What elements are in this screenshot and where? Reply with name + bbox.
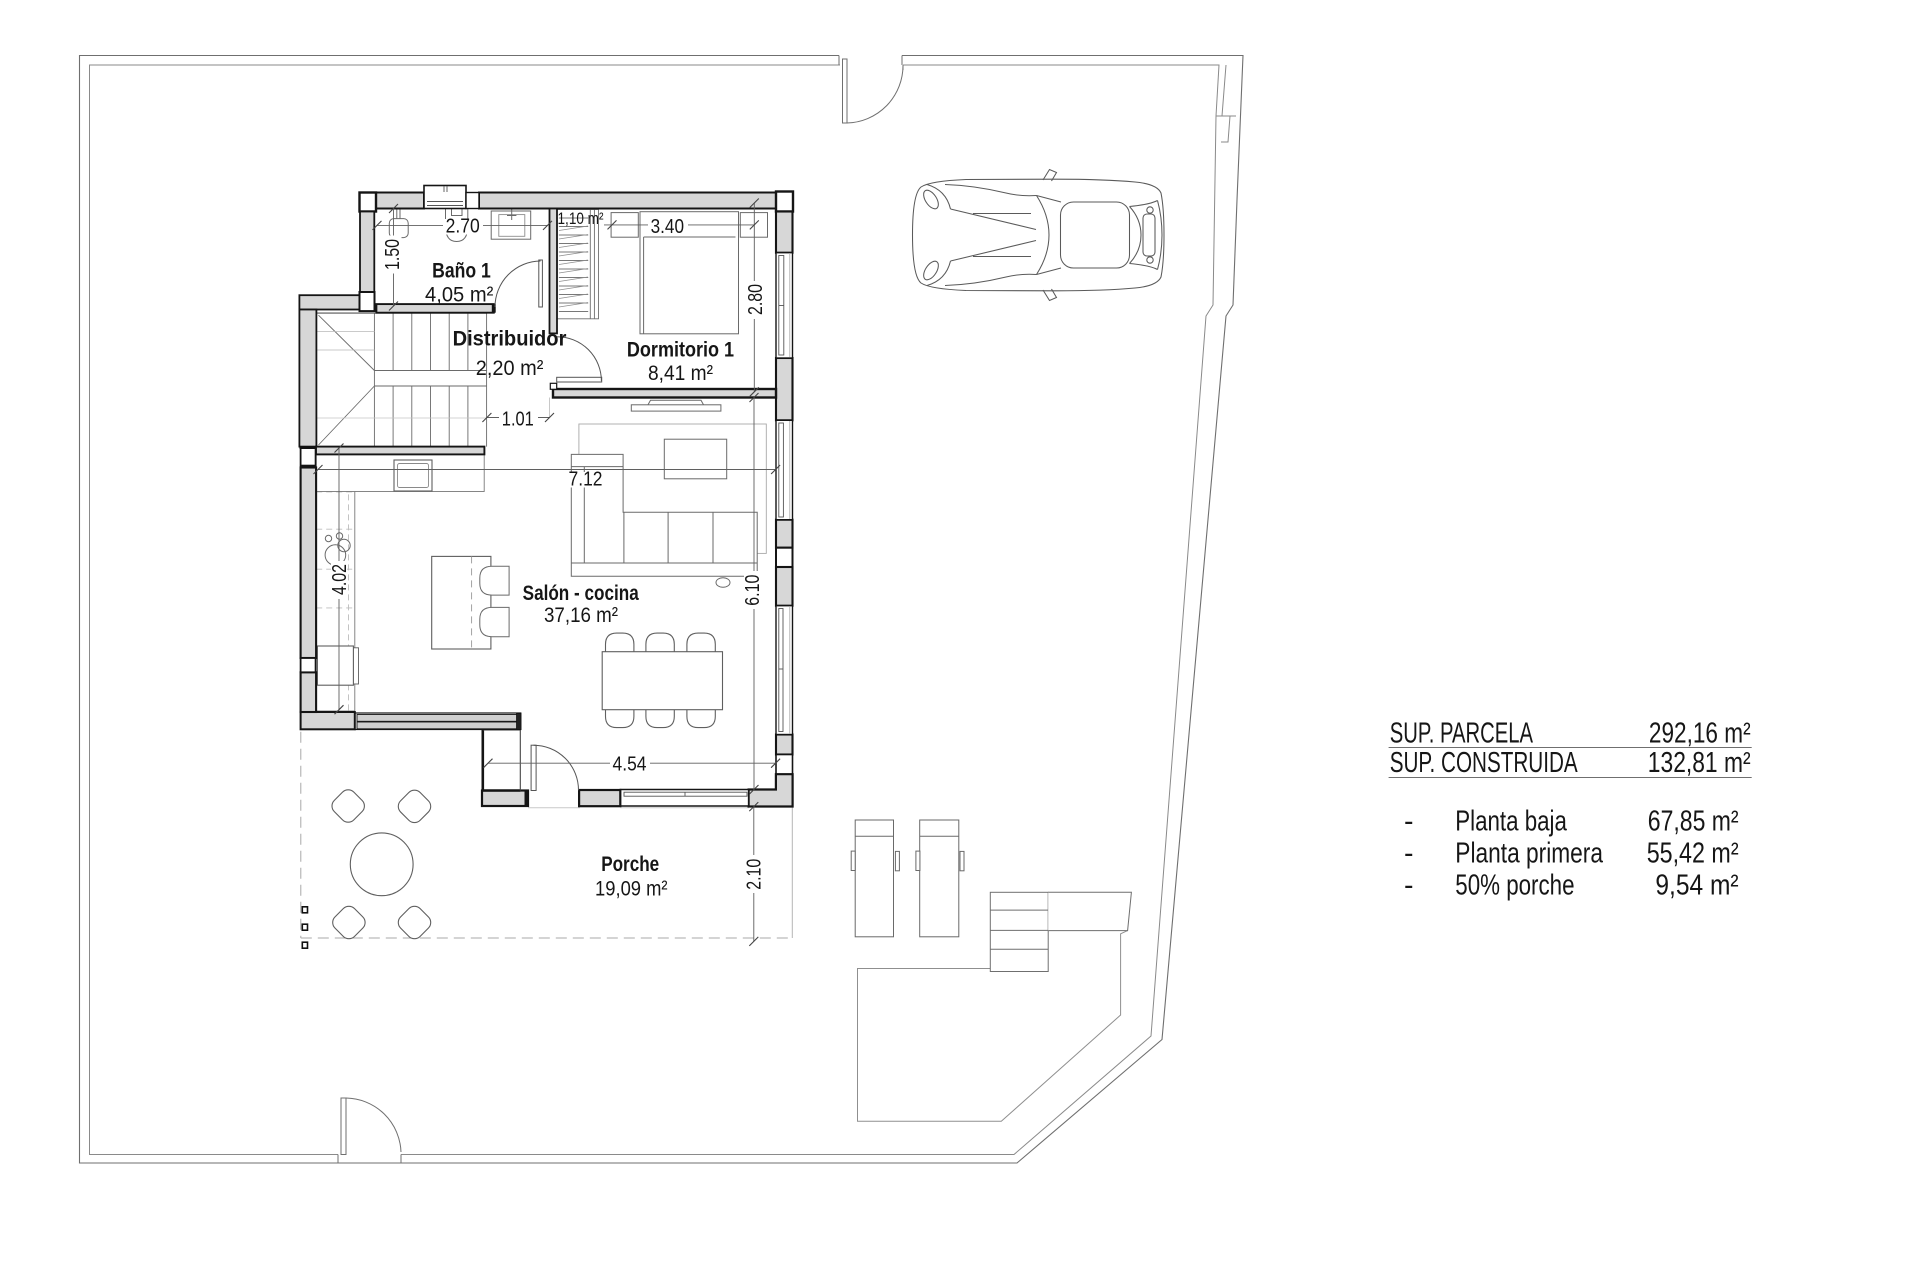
svg-text:Planta primera: Planta primera — [1455, 838, 1603, 870]
svg-text:Salón - cocina: Salón - cocina — [523, 581, 640, 605]
svg-text:4.54: 4.54 — [613, 754, 647, 776]
svg-text:Porche: Porche — [601, 852, 659, 876]
svg-text:1.01: 1.01 — [502, 409, 534, 431]
svg-text:132,81 m²: 132,81 m² — [1648, 747, 1751, 779]
svg-text:4,05 m²: 4,05 m² — [425, 284, 493, 307]
svg-text:4.02: 4.02 — [329, 564, 351, 595]
svg-text:7.12: 7.12 — [569, 469, 603, 491]
svg-text:19,09 m²: 19,09 m² — [595, 877, 668, 900]
svg-text:SUP. PARCELA: SUP. PARCELA — [1390, 718, 1533, 750]
svg-text:-: - — [1404, 870, 1414, 902]
svg-text:67,85 m²: 67,85 m² — [1648, 806, 1739, 838]
svg-text:1,10 m²: 1,10 m² — [558, 209, 604, 228]
svg-text:3.40: 3.40 — [651, 216, 684, 238]
svg-text:50% porche: 50% porche — [1455, 870, 1574, 902]
svg-text:2,20 m²: 2,20 m² — [476, 357, 544, 380]
svg-text:Dormitorio 1: Dormitorio 1 — [627, 338, 734, 362]
svg-text:2.80: 2.80 — [745, 284, 767, 315]
svg-text:-: - — [1404, 806, 1414, 838]
svg-text:2.70: 2.70 — [446, 216, 480, 238]
svg-text:1.50: 1.50 — [382, 239, 404, 270]
svg-text:SUP. CONSTRUIDA: SUP. CONSTRUIDA — [1390, 747, 1578, 779]
svg-text:Distribuidor: Distribuidor — [453, 326, 567, 350]
svg-text:292,16 m²: 292,16 m² — [1649, 718, 1751, 750]
svg-text:2.10: 2.10 — [744, 859, 766, 890]
svg-text:-: - — [1404, 838, 1414, 870]
svg-text:55,42 m²: 55,42 m² — [1647, 838, 1739, 870]
svg-text:Planta baja: Planta baja — [1455, 806, 1567, 838]
svg-text:Baño 1: Baño 1 — [432, 258, 491, 282]
svg-text:9,54 m²: 9,54 m² — [1655, 870, 1738, 902]
svg-text:6.10: 6.10 — [742, 575, 764, 606]
svg-text:8,41 m²: 8,41 m² — [648, 362, 713, 385]
svg-text:37,16 m²: 37,16 m² — [544, 604, 618, 627]
